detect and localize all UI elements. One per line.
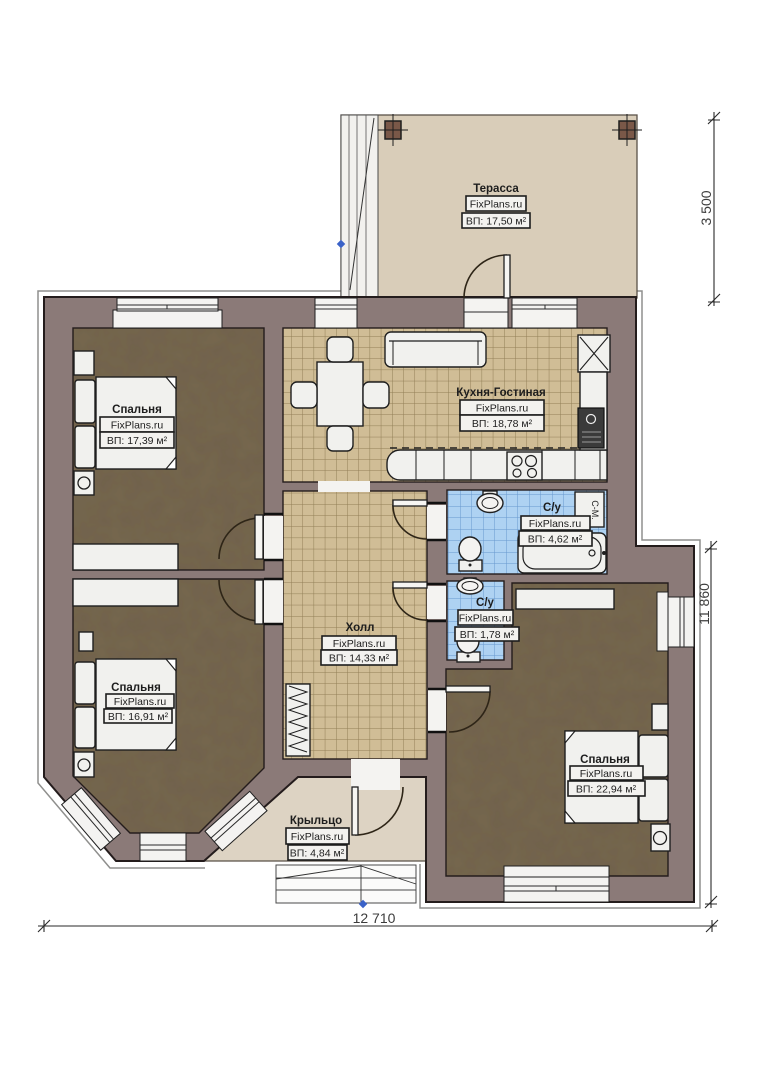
svg-text:Спальня: Спальня: [111, 682, 161, 694]
svg-text:ВП: 17,39 м²: ВП: 17,39 м²: [107, 435, 168, 447]
svg-text:ВП: 18,78 м²: ВП: 18,78 м²: [472, 418, 533, 430]
svg-text:3 500: 3 500: [698, 190, 714, 225]
svg-text:FixPlans.ru: FixPlans.ru: [476, 403, 529, 415]
svg-text:Холл: Холл: [346, 622, 375, 634]
svg-text:ВП: 4,62 м²: ВП: 4,62 м²: [528, 534, 583, 546]
svg-text:Терасса: Терасса: [473, 183, 519, 195]
svg-text:С/у: С/у: [476, 597, 495, 609]
svg-text:FixPlans.ru: FixPlans.ru: [291, 831, 344, 843]
svg-text:FixPlans.ru: FixPlans.ru: [111, 420, 164, 432]
svg-text:С/у: С/у: [543, 502, 562, 514]
svg-text:Крыльцо: Крыльцо: [290, 815, 342, 827]
svg-text:С-М.: С-М.: [590, 500, 600, 520]
svg-text:Кухня-Гостиная: Кухня-Гостиная: [456, 387, 545, 399]
svg-text:FixPlans.ru: FixPlans.ru: [459, 613, 512, 625]
svg-text:ВП: 4,84 м²: ВП: 4,84 м²: [290, 848, 345, 860]
svg-text:ВП: 22,94 м²: ВП: 22,94 м²: [576, 784, 637, 796]
svg-text:ВП: 14,33 м²: ВП: 14,33 м²: [329, 653, 390, 665]
svg-text:FixPlans.ru: FixPlans.ru: [333, 638, 386, 650]
svg-text:ВП: 1,78 м²: ВП: 1,78 м²: [460, 629, 515, 641]
svg-text:Спальня: Спальня: [112, 404, 162, 416]
svg-text:12 710: 12 710: [353, 910, 396, 926]
svg-text:Спальня: Спальня: [580, 754, 630, 766]
svg-text:11 860: 11 860: [696, 583, 712, 625]
svg-text:FixPlans.ru: FixPlans.ru: [470, 199, 523, 211]
svg-text:FixPlans.ru: FixPlans.ru: [529, 518, 582, 530]
svg-text:ВП: 17,50 м²: ВП: 17,50 м²: [466, 216, 527, 228]
svg-text:FixPlans.ru: FixPlans.ru: [114, 696, 167, 708]
svg-text:FixPlans.ru: FixPlans.ru: [580, 768, 633, 780]
svg-text:ВП: 16,91 м²: ВП: 16,91 м²: [108, 711, 169, 723]
